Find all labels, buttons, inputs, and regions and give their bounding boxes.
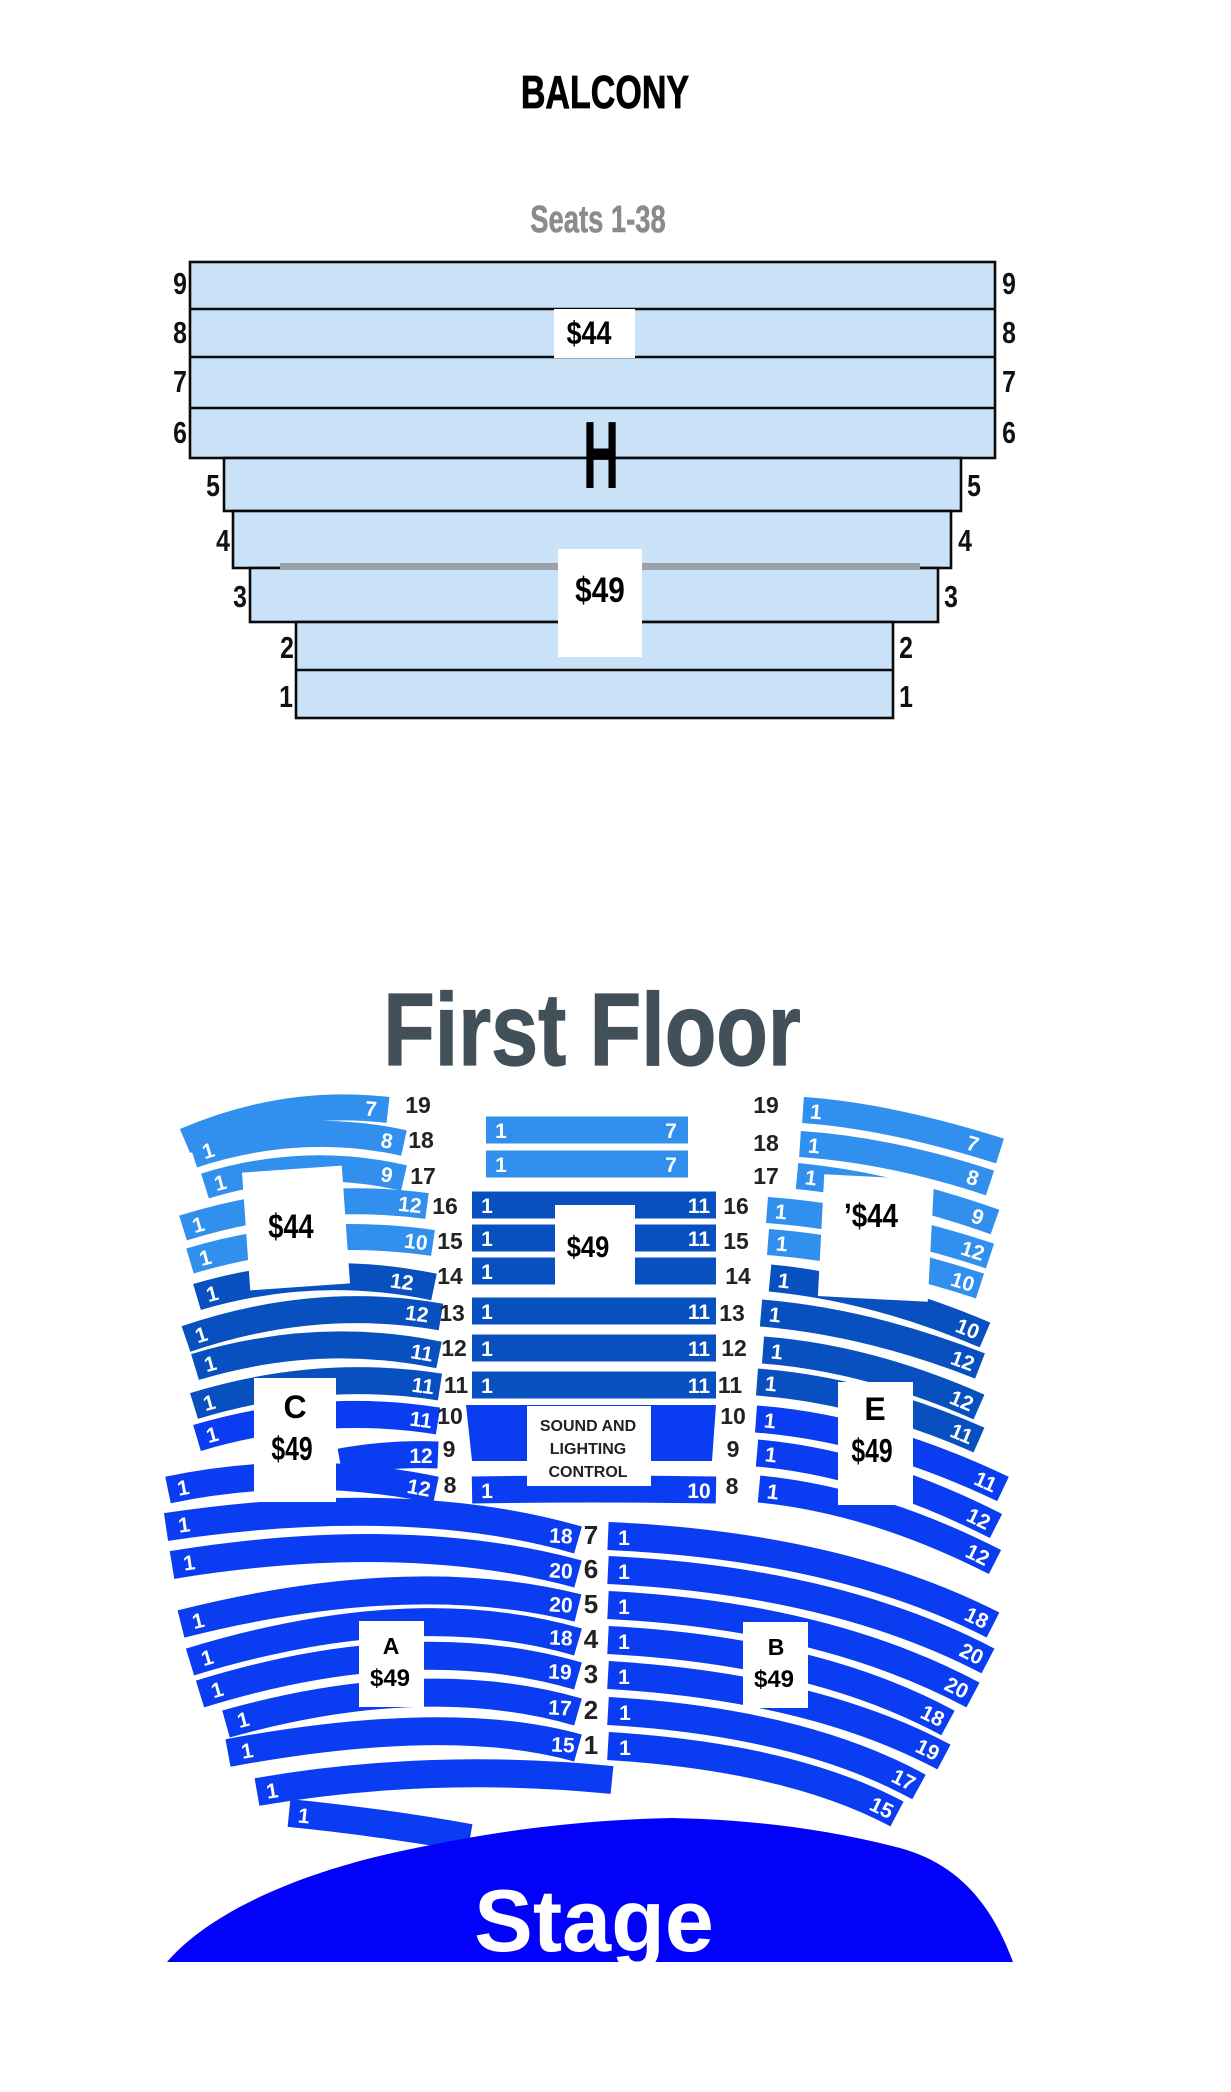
svg-text:$49: $49 <box>851 1434 892 1470</box>
svg-text:$44: $44 <box>567 316 612 352</box>
svg-text:$49: $49 <box>370 1665 410 1692</box>
svg-text:11: 11 <box>718 1372 743 1398</box>
svg-text:15: 15 <box>551 1733 576 1757</box>
svg-text:H: H <box>583 403 619 510</box>
svg-text:7: 7 <box>364 1098 377 1122</box>
svg-text:15: 15 <box>437 1228 463 1254</box>
svg-text:8: 8 <box>1002 315 1016 349</box>
svg-text:9: 9 <box>727 1436 740 1462</box>
svg-text:13: 13 <box>439 1300 465 1326</box>
svg-text:SOUND AND: SOUND AND <box>540 1418 636 1435</box>
svg-text:14: 14 <box>725 1263 751 1289</box>
svg-text:19: 19 <box>753 1092 779 1118</box>
svg-text:7: 7 <box>173 364 187 398</box>
svg-text:1: 1 <box>618 1561 630 1584</box>
svg-text:CONTROL: CONTROL <box>548 1464 627 1481</box>
svg-text:E: E <box>864 1391 885 1427</box>
svg-text:1: 1 <box>807 1135 821 1159</box>
svg-text:5: 5 <box>584 1589 598 1619</box>
svg-text:8: 8 <box>444 1472 457 1498</box>
svg-text:3: 3 <box>584 1659 598 1689</box>
svg-text:19: 19 <box>405 1092 431 1118</box>
svg-text:BALCONY: BALCONY <box>521 66 689 118</box>
svg-text:Seats 1-38: Seats 1-38 <box>530 199 665 241</box>
svg-text:1: 1 <box>619 1702 631 1725</box>
svg-text:15: 15 <box>723 1228 749 1254</box>
svg-text:1: 1 <box>899 679 913 713</box>
svg-text:1: 1 <box>481 1261 493 1284</box>
svg-text:7: 7 <box>584 1520 598 1550</box>
svg-text:19: 19 <box>548 1660 573 1684</box>
svg-text:1: 1 <box>809 1101 823 1125</box>
svg-text:7: 7 <box>665 1154 677 1177</box>
svg-text:8: 8 <box>173 315 187 349</box>
svg-text:7: 7 <box>1002 364 1016 398</box>
svg-text:1: 1 <box>618 1631 630 1654</box>
svg-text:16: 16 <box>432 1193 458 1219</box>
svg-text:B: B <box>768 1634 785 1660</box>
svg-text:14: 14 <box>437 1263 463 1289</box>
svg-text:12: 12 <box>721 1335 747 1361</box>
svg-text:LIGHTING: LIGHTING <box>550 1441 626 1458</box>
svg-text:8: 8 <box>726 1473 739 1499</box>
svg-text:6: 6 <box>173 415 187 449</box>
svg-text:1: 1 <box>618 1527 630 1550</box>
svg-text:$49: $49 <box>575 571 625 610</box>
svg-text:9: 9 <box>443 1436 456 1462</box>
svg-text:4: 4 <box>216 523 230 557</box>
svg-text:12: 12 <box>397 1193 423 1218</box>
svg-text:6: 6 <box>584 1554 598 1584</box>
svg-text:1: 1 <box>618 1666 630 1689</box>
svg-text:2: 2 <box>899 630 913 664</box>
svg-text:11: 11 <box>408 1408 433 1434</box>
svg-text:12: 12 <box>405 1475 432 1502</box>
svg-text:3: 3 <box>233 579 247 613</box>
svg-text:13: 13 <box>719 1300 745 1326</box>
svg-text:10: 10 <box>687 1480 711 1503</box>
svg-text:11: 11 <box>688 1228 711 1251</box>
svg-text:3: 3 <box>944 579 958 613</box>
svg-text:1: 1 <box>495 1120 507 1143</box>
svg-text:5: 5 <box>206 468 220 502</box>
svg-text:11: 11 <box>444 1372 469 1398</box>
svg-text:12: 12 <box>441 1335 467 1361</box>
svg-text:A: A <box>383 1633 400 1659</box>
svg-text:6: 6 <box>1002 415 1016 449</box>
svg-text:18: 18 <box>408 1127 434 1153</box>
svg-text:9: 9 <box>173 266 187 300</box>
svg-text:1: 1 <box>481 1375 493 1398</box>
svg-text:2: 2 <box>584 1695 598 1725</box>
svg-text:12: 12 <box>404 1302 430 1328</box>
svg-text:1: 1 <box>774 1201 788 1225</box>
svg-text:12: 12 <box>409 1445 432 1468</box>
svg-text:16: 16 <box>723 1193 749 1219</box>
svg-text:1: 1 <box>618 1596 630 1619</box>
svg-text:10: 10 <box>403 1230 429 1256</box>
svg-text:11: 11 <box>688 1301 711 1324</box>
svg-text:17: 17 <box>410 1163 436 1189</box>
svg-text:First Floor: First Floor <box>383 972 801 1087</box>
svg-text:18: 18 <box>549 1626 574 1650</box>
svg-text:9: 9 <box>1002 266 1016 300</box>
svg-text:17: 17 <box>753 1163 779 1189</box>
svg-text:7: 7 <box>665 1120 677 1143</box>
svg-text:1: 1 <box>619 1737 631 1760</box>
svg-text:1: 1 <box>279 679 293 713</box>
svg-text:18: 18 <box>753 1130 779 1156</box>
svg-text:4: 4 <box>958 523 972 557</box>
svg-text:1: 1 <box>495 1154 507 1177</box>
svg-text:1: 1 <box>481 1301 493 1324</box>
svg-text:17: 17 <box>548 1696 573 1720</box>
svg-text:1: 1 <box>481 1195 493 1218</box>
svg-text:$49: $49 <box>567 1230 610 1263</box>
svg-text:4: 4 <box>584 1624 599 1654</box>
svg-text:11: 11 <box>688 1375 711 1398</box>
svg-text:2: 2 <box>280 630 294 664</box>
svg-text:Stage: Stage <box>474 1871 714 1970</box>
svg-text:$49: $49 <box>271 1432 312 1468</box>
svg-text:11: 11 <box>688 1195 711 1218</box>
svg-text:18: 18 <box>549 1524 574 1548</box>
svg-text:10: 10 <box>437 1403 463 1429</box>
svg-text:12: 12 <box>389 1269 415 1295</box>
svg-text:1: 1 <box>481 1480 493 1503</box>
svg-text:1: 1 <box>584 1730 598 1760</box>
svg-text:11: 11 <box>410 1374 435 1400</box>
svg-text:1: 1 <box>481 1338 493 1361</box>
svg-text:20: 20 <box>549 1593 574 1617</box>
svg-text:5: 5 <box>967 468 981 502</box>
svg-text:11: 11 <box>688 1338 711 1361</box>
svg-text:$49: $49 <box>754 1666 794 1693</box>
svg-text:10: 10 <box>720 1403 746 1429</box>
svg-text:20: 20 <box>549 1559 574 1583</box>
svg-text:1: 1 <box>481 1228 493 1251</box>
svg-text:$44: $44 <box>268 1207 313 1246</box>
svg-text:11: 11 <box>409 1340 435 1366</box>
svg-text:ʼ$44: ʼ$44 <box>844 1198 898 1235</box>
svg-text:C: C <box>283 1389 306 1425</box>
